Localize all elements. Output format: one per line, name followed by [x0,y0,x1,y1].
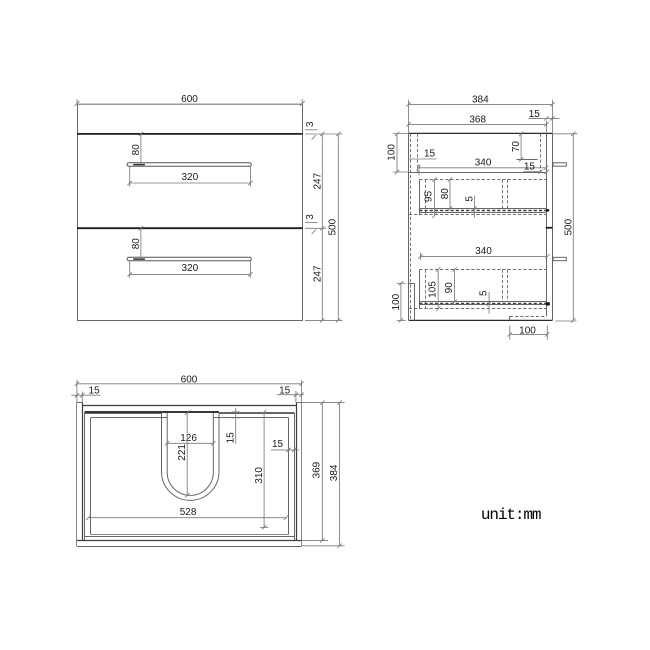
svg-text:5: 5 [464,196,475,202]
svg-text:221: 221 [177,444,188,461]
svg-text:95: 95 [424,191,435,203]
svg-text:100: 100 [387,144,398,161]
svg-text:310: 310 [254,467,265,484]
svg-text:15: 15 [424,149,436,160]
svg-text:3: 3 [305,121,316,127]
svg-text:600: 600 [181,94,198,105]
svg-text:528: 528 [180,507,197,518]
svg-text:80: 80 [440,188,451,200]
svg-text:15: 15 [272,439,284,450]
svg-text:247: 247 [312,265,323,282]
svg-text:15: 15 [529,109,541,120]
svg-text:5: 5 [479,290,490,296]
svg-text:247: 247 [312,172,323,189]
svg-text:320: 320 [181,263,198,274]
svg-text:126: 126 [180,433,197,444]
svg-text:105: 105 [428,281,439,298]
svg-text:340: 340 [475,246,492,257]
svg-text:70: 70 [511,141,522,153]
svg-text:320: 320 [181,172,198,183]
svg-text:500: 500 [563,218,574,235]
svg-text:3: 3 [305,214,316,220]
svg-text:15: 15 [225,432,236,444]
svg-text:80: 80 [131,238,142,250]
svg-text:384: 384 [472,95,489,106]
svg-text:369: 369 [311,461,322,478]
svg-text:100: 100 [519,325,536,336]
svg-text:600: 600 [181,374,198,385]
svg-text:15: 15 [279,385,291,396]
svg-text:15: 15 [524,161,536,172]
svg-text:100: 100 [391,293,402,310]
svg-text:340: 340 [475,157,492,168]
svg-text:368: 368 [469,115,486,126]
svg-text:unit:mm: unit:mm [481,506,541,524]
svg-text:80: 80 [131,144,142,156]
svg-text:384: 384 [329,464,340,481]
svg-text:90: 90 [444,282,455,294]
svg-text:500: 500 [328,218,339,235]
svg-text:15: 15 [89,385,101,396]
